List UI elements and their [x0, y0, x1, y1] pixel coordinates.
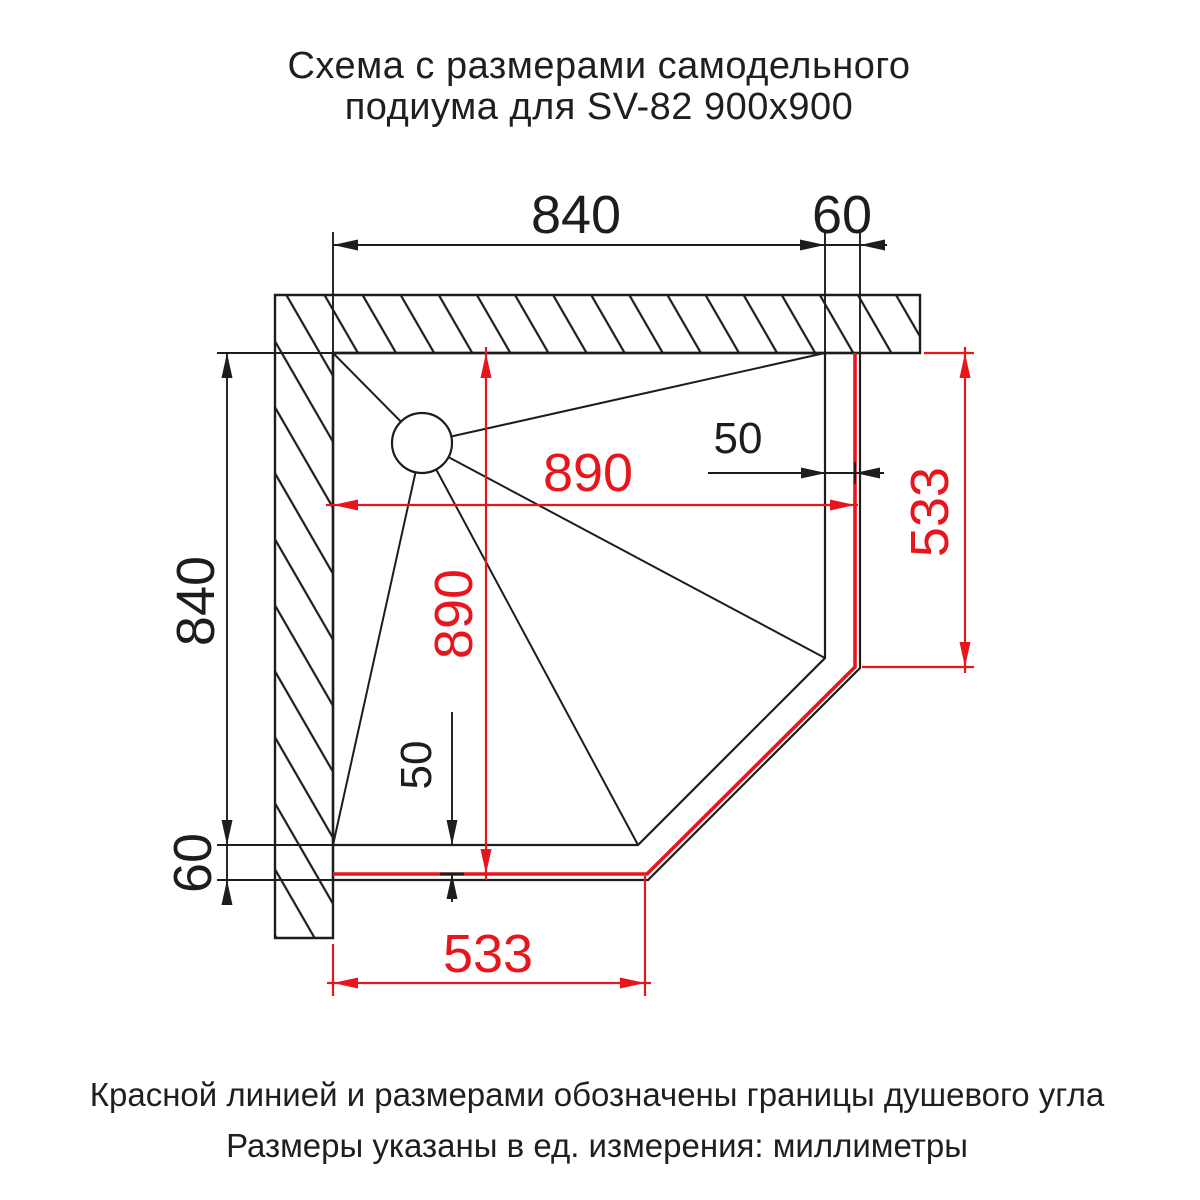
slope-line-top-right — [422, 353, 825, 443]
drain-circle — [392, 413, 452, 473]
arrowhead-left-icon — [333, 240, 358, 251]
dim-label-right-straight-side: 533 — [900, 467, 960, 557]
dim-label-shower-depth: 890 — [424, 569, 484, 659]
arrowhead-up-icon — [960, 353, 971, 378]
drawing-svg: Схема с размерами самодельного подиума д… — [0, 0, 1200, 1200]
dim-bottom-side-533: 533 — [327, 876, 651, 996]
dim-label-top-wall-offset: 60 — [812, 185, 872, 245]
arrowhead-right-icon — [801, 468, 826, 479]
arrowhead-left-icon — [333, 500, 358, 511]
arrowhead-down-icon — [447, 820, 458, 845]
footnote-line-2: Размеры указаны в ед. измерения: миллиме… — [226, 1127, 968, 1164]
footnote-line-1: Красной линией и размерами обозначены гр… — [90, 1076, 1105, 1113]
dim-label-top-width: 840 — [531, 185, 621, 245]
arrowhead-right-icon — [620, 978, 645, 989]
arrowhead-up-icon — [222, 353, 233, 378]
arrowhead-up-icon — [481, 353, 492, 378]
dim-right-side-533: 533 — [862, 347, 974, 673]
arrowhead-up-icon — [447, 874, 458, 899]
dim-label-shower-width: 890 — [543, 443, 633, 503]
title-line-1: Схема с размерами самодельного — [287, 45, 910, 87]
dim-label-right-gap: 50 — [714, 414, 763, 463]
arrowhead-down-icon — [481, 849, 492, 874]
dim-label-left-wall-offset: 60 — [163, 833, 223, 893]
arrowhead-down-icon — [222, 820, 233, 845]
arrowhead-left-icon — [333, 978, 358, 989]
title-line-2: подиума для SV-82 900х900 — [345, 86, 854, 128]
podium-dimension-drawing: Схема с размерами самодельного подиума д… — [0, 0, 1200, 1200]
arrowhead-up-icon — [222, 880, 233, 905]
arrowhead-left-icon — [855, 468, 880, 479]
dim-label-bottom-straight-side: 533 — [443, 924, 533, 984]
dim-label-bottom-gap: 50 — [392, 741, 441, 790]
arrowhead-right-icon — [830, 500, 855, 511]
arrowhead-down-icon — [960, 642, 971, 667]
dim-right-gap-50: 50 — [708, 414, 884, 484]
dim-label-left-height: 840 — [166, 556, 226, 646]
